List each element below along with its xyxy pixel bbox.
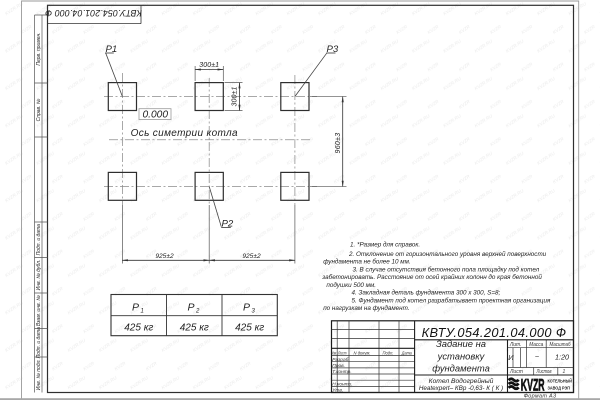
svg-text:Ось симетрии котла: Ось симетрии котла [131,128,238,139]
svg-text:подушки 500 мм.: подушки 500 мм. [326,281,376,289]
svg-text:425 кг: 425 кг [124,322,153,333]
svg-text:Р: Р [243,302,250,314]
svg-text:Взам. инв. №: Взам. инв. № [36,295,42,327]
svg-text:Н.контр.: Н.контр. [332,382,352,388]
svg-text:925±2: 925±2 [155,253,174,260]
svg-text:Подп.: Подп. [383,350,394,355]
svg-text:фундамента: фундамента [432,362,490,373]
svg-text:КОТЕЛЬНЫЙ: КОТЕЛЬНЫЙ [548,379,573,384]
svg-text:925±2: 925±2 [242,253,261,260]
svg-text:1:20: 1:20 [555,352,569,361]
svg-text:Лит.: Лит. [509,342,522,348]
svg-text:Разраб.: Разраб. [332,357,349,363]
svg-text:Масштаб: Масштаб [550,342,571,348]
svg-text:960±3: 960±3 [335,133,342,154]
svg-text:1: 1 [141,309,144,315]
svg-text:Инв. № подл.: Инв. № подл. [36,359,42,390]
svg-text:Подп. и дата: Подп. и дата [36,327,42,359]
svg-text:по нагрузкам на фундамент.: по нагрузкам на фундамент. [323,304,409,312]
svg-text:N докум.: N докум. [354,350,371,355]
svg-text:Лист: Лист [337,350,346,355]
svg-text:Р: Р [132,302,139,314]
svg-text:фундамента не более 10 мм.: фундамента не более 10 мм. [323,258,411,266]
svg-text:Изм.: Изм. [332,350,337,355]
svg-text:Котел Водогрейный: Котел Водогрейный [429,377,494,385]
svg-text:0.000: 0.000 [143,110,169,121]
svg-text:Листов: Листов [536,369,552,375]
svg-text:Масса: Масса [529,342,543,348]
svg-text:2: 2 [195,309,200,315]
svg-text:Утв.: Утв. [332,388,343,394]
svg-text:425 кг: 425 кг [180,322,209,333]
svg-text:1. *Размер для справок.: 1. *Размер для справок. [350,240,420,248]
svg-text:4. Закладная деталь фундамент: 4. Закладная деталь фундамента 300 х 300… [352,289,501,297]
svg-text:300±1: 300±1 [232,87,239,107]
svg-text:Дата: Дата [401,350,412,355]
svg-text:ЗАВОД РЭП: ЗАВОД РЭП [548,385,571,390]
svg-text:Справ. №: Справ. № [36,98,42,121]
svg-text:установку: установку [437,351,486,362]
svg-text:425 кг: 425 кг [235,322,264,333]
svg-text:Формат А3: Формат А3 [524,394,557,400]
svg-text:Р: Р [188,302,195,314]
svg-text:Heatexpert– КВр -0,63- К ( К ): Heatexpert– КВр -0,63- К ( К ) [419,385,503,392]
svg-text:Задание на: Задание на [436,338,486,349]
svg-text:2. Отклонение от горизонтальн: 2. Отклонение от горизонтального уровня … [348,250,547,258]
svg-text:Т.контр.: Т.контр. [332,369,351,375]
svg-text:5. Фундамент под котел разраб: 5. Фундамент под котел разрабатывает про… [352,296,551,304]
svg-text:1: 1 [563,369,566,375]
svg-text:забетонировать. Расстояние от: забетонировать. Расстояние от осей крайн… [321,273,542,281]
svg-text:Инв. № дубл.: Инв. № дубл. [36,260,42,291]
svg-text:KVZR: KVZR [521,375,545,394]
svg-text:300±1: 300±1 [199,62,219,69]
svg-text:3. В случае отсутствия бетонн: 3. В случае отсутствия бетонного пола пл… [353,265,540,273]
svg-text:Перв. примен.: Перв. примен. [36,32,42,65]
svg-text:И: И [508,353,514,362]
svg-text:–: – [534,353,539,360]
svg-text:КВТУ.054.201.04.000 Ф: КВТУ.054.201.04.000 Ф [45,8,142,18]
svg-text:Пров.: Пров. [332,363,345,369]
svg-text:Подп. и дата: Подп. и дата [36,224,42,256]
svg-text:Лист: Лист [509,369,523,375]
